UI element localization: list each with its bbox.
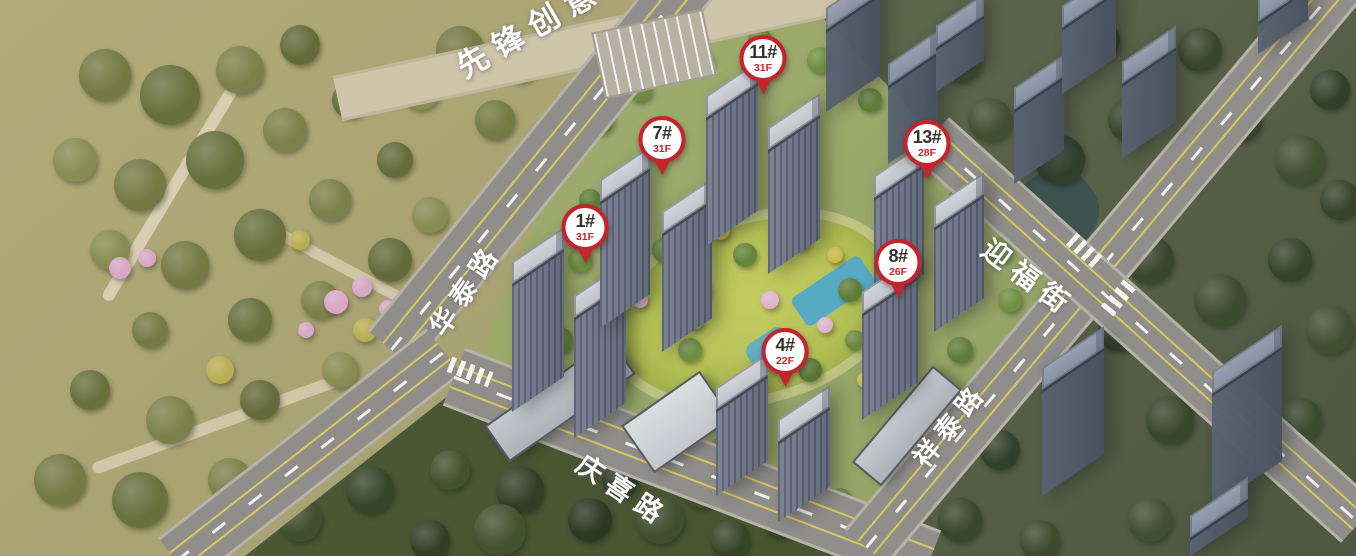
- tree-canopy: [1320, 180, 1356, 220]
- tree-canopy: [298, 322, 314, 338]
- pin-building-number: 11#: [749, 43, 777, 61]
- pin-building-number: 8#: [888, 247, 907, 265]
- tree-canopy: [186, 131, 244, 189]
- pin-circle: 7# 31F: [639, 116, 686, 163]
- tree-canopy: [1020, 520, 1060, 556]
- tree-canopy: [430, 450, 470, 490]
- tree-canopy: [947, 337, 973, 363]
- tree-canopy: [240, 380, 280, 420]
- tree-canopy: [140, 65, 200, 125]
- tree-canopy: [70, 370, 110, 410]
- tree-canopy: [132, 312, 168, 348]
- building-pin-7[interactable]: 7# 31F: [639, 116, 686, 175]
- tree-canopy: [1306, 306, 1354, 354]
- pin-circle: 1# 31F: [562, 204, 609, 251]
- tree-canopy: [412, 197, 448, 233]
- tree-canopy: [322, 352, 358, 388]
- pin-building-number: 13#: [913, 128, 942, 146]
- tree-canopy: [858, 88, 882, 112]
- pin-circle: 4# 22F: [762, 328, 809, 375]
- building-pin-13[interactable]: 13# 28F: [904, 120, 951, 179]
- tree-canopy: [1310, 70, 1350, 110]
- building-pin-11[interactable]: 11# 31F: [740, 35, 787, 94]
- tree-canopy: [109, 257, 131, 279]
- pin-floor-count: 31F: [576, 232, 594, 243]
- building-pin-8[interactable]: 8# 26F: [875, 239, 922, 298]
- tree-canopy: [998, 288, 1022, 312]
- tree-canopy: [146, 396, 194, 444]
- tree-canopy: [263, 108, 307, 152]
- tree-canopy: [112, 472, 168, 528]
- tree-canopy: [474, 504, 526, 556]
- tree-canopy: [817, 317, 833, 333]
- tree-canopy: [309, 179, 351, 221]
- tree-canopy: [475, 100, 515, 140]
- tree-canopy: [678, 338, 702, 362]
- tree-canopy: [206, 356, 234, 384]
- tree-canopy: [352, 277, 372, 297]
- tree-canopy: [290, 230, 310, 250]
- pin-circle: 8# 26F: [875, 239, 922, 286]
- pin-building-number: 7#: [652, 124, 671, 142]
- tree-canopy: [710, 520, 750, 556]
- tree-canopy: [234, 209, 286, 261]
- tree-canopy: [346, 466, 394, 514]
- tree-canopy: [53, 138, 97, 182]
- building-pin-1[interactable]: 1# 31F: [562, 204, 609, 263]
- building-pin-4[interactable]: 4# 22F: [762, 328, 809, 387]
- tree-canopy: [636, 496, 684, 544]
- tree-canopy: [216, 46, 264, 94]
- pin-floor-count: 31F: [653, 144, 671, 155]
- tree-canopy: [114, 159, 166, 211]
- tree-canopy: [368, 238, 412, 282]
- tree-canopy: [568, 498, 612, 542]
- pin-circle: 11# 31F: [740, 35, 787, 82]
- pin-circle: 13# 28F: [904, 120, 951, 167]
- tree-canopy: [733, 243, 757, 267]
- pin-building-number: 1#: [575, 212, 594, 230]
- tree-canopy: [761, 291, 779, 309]
- pin-floor-count: 28F: [918, 148, 936, 159]
- tree-canopy: [138, 249, 156, 267]
- tree-canopy: [34, 454, 86, 506]
- tree-canopy: [1128, 498, 1172, 542]
- tree-canopy: [1275, 135, 1325, 185]
- tree-canopy: [280, 25, 320, 65]
- tree-canopy: [968, 98, 1012, 142]
- pin-floor-count: 26F: [889, 267, 907, 278]
- tree-canopy: [838, 278, 862, 302]
- pin-floor-count: 31F: [754, 63, 772, 74]
- tree-canopy: [1178, 28, 1222, 72]
- tree-canopy: [228, 298, 272, 342]
- tree-canopy: [1194, 274, 1246, 326]
- tree-canopy: [827, 247, 843, 263]
- tree-canopy: [410, 520, 450, 556]
- tree-canopy: [324, 290, 348, 314]
- pin-floor-count: 22F: [776, 356, 794, 367]
- tree-canopy: [377, 142, 413, 178]
- masterplan-aerial-view: 1# 31F 4# 22F 7# 31F 8# 26F 11# 31F: [0, 0, 1356, 556]
- tree-canopy: [79, 49, 131, 101]
- tree-canopy: [161, 241, 209, 289]
- tree-canopy: [1268, 238, 1312, 282]
- tree-canopy: [938, 498, 982, 542]
- pin-building-number: 4#: [775, 336, 794, 354]
